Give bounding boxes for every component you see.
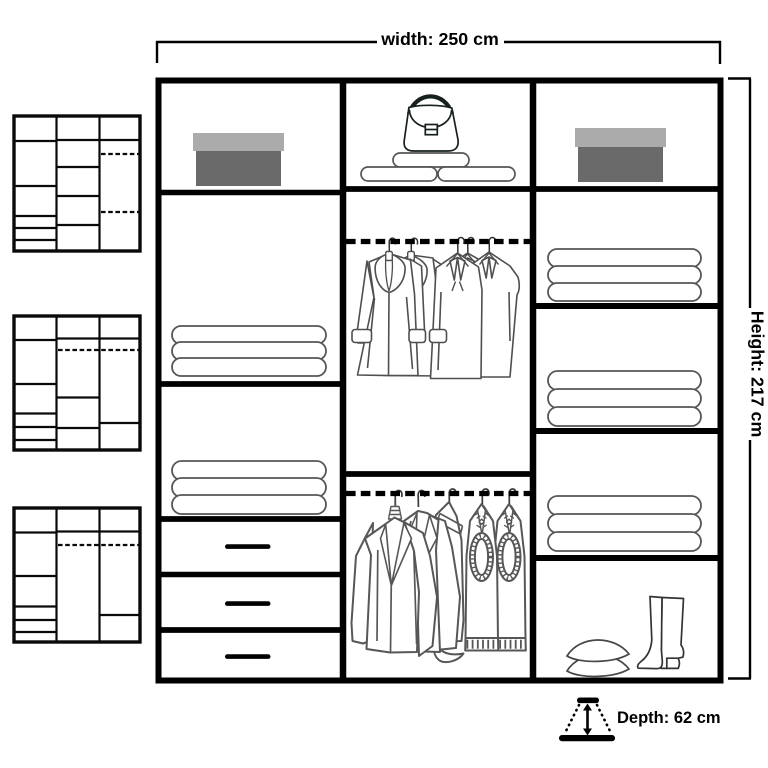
svg-text:Height: 217 cm: Height: 217 cm [748, 311, 768, 437]
svg-text:Depth: 62 cm: Depth: 62 cm [617, 709, 721, 727]
svg-text:width: 250 cm: width: 250 cm [380, 29, 499, 49]
